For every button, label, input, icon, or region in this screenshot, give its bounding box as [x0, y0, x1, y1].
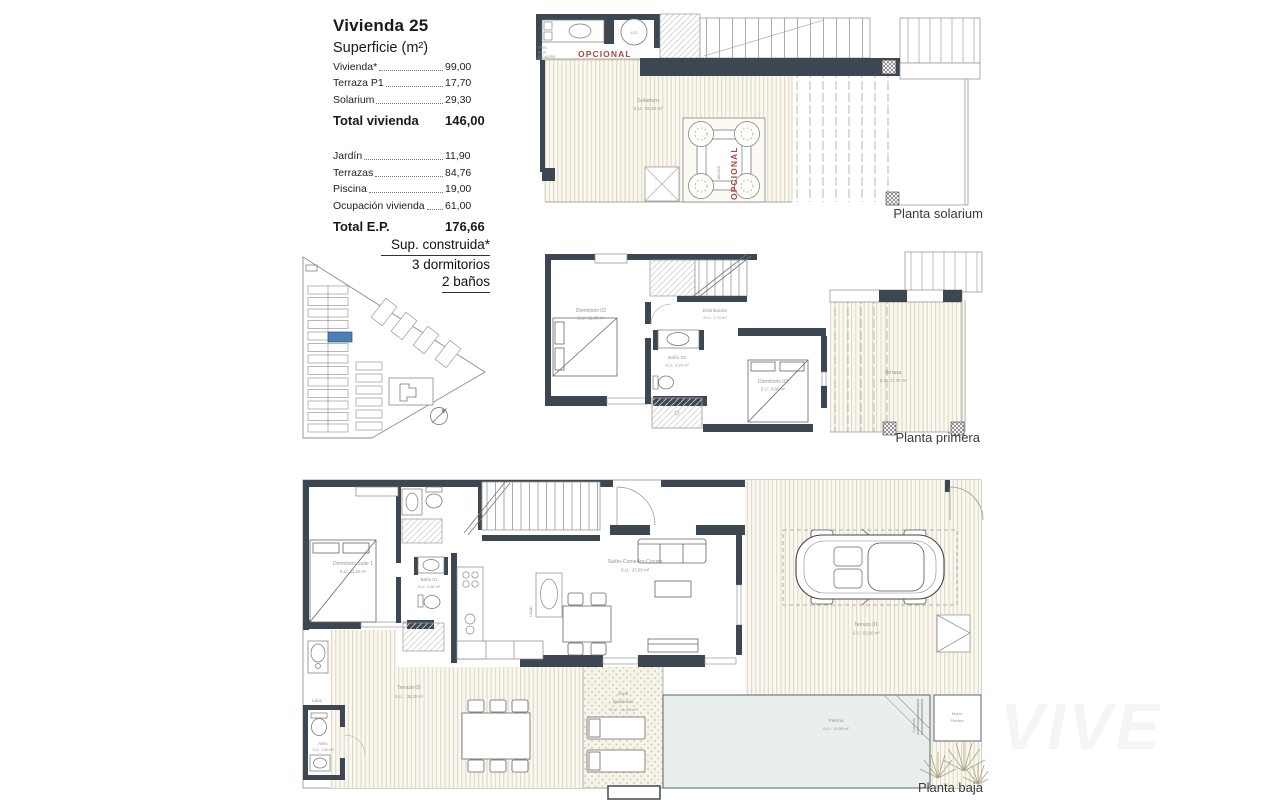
- total-label: Total E.P.: [333, 219, 445, 234]
- toilet-icon: [426, 494, 442, 508]
- skylight-icon: [645, 167, 679, 201]
- door-swing: [651, 304, 671, 324]
- closet-icon: [356, 487, 398, 496]
- shower-icon: [652, 398, 702, 428]
- dotted-leader: [379, 70, 443, 71]
- under-stairs-label: FREG.: [538, 46, 548, 50]
- highlighted-unit-25: [328, 332, 352, 342]
- dotted-leader: [369, 192, 443, 193]
- room-label: Dormitorio Suite 1: [333, 561, 373, 567]
- bathroom-sink-icon: [653, 330, 704, 350]
- row-label: Solarium: [333, 94, 374, 106]
- closet-icon: [595, 254, 627, 263]
- wall: [703, 424, 813, 432]
- hob-icon: [463, 572, 469, 578]
- plan-baja: Piscina S.U.: 19,00 m² Cascada Motor Pis…: [296, 473, 988, 800]
- sink-icon: [311, 644, 325, 662]
- room-label: Terraza 01: [854, 622, 878, 628]
- stairs: [650, 254, 751, 300]
- lava-label: Lava: [312, 698, 322, 703]
- dwelling-title: Vivienda 25: [333, 16, 491, 36]
- sink-icon: [406, 493, 418, 511]
- wall: [879, 290, 907, 302]
- dotted-leader: [375, 176, 443, 177]
- room-area: S.U.: 53,66 m²: [853, 631, 881, 636]
- room-area: S.U. : 35,30 m²: [395, 694, 424, 699]
- surface-subtitle: Superficie (m²): [333, 40, 491, 56]
- toilet-icon: [424, 596, 440, 609]
- motor-label: Motor: [952, 711, 963, 716]
- row-label: Jardín: [333, 150, 362, 162]
- bed-icon: [310, 540, 376, 622]
- room-label: Distribuidor: [703, 308, 728, 314]
- outdoor-table-icon: [462, 700, 530, 772]
- sink-icon: [466, 626, 474, 634]
- room-label: Dormitorio 03: [758, 379, 788, 385]
- wall: [640, 58, 900, 76]
- room-area: S.U. : 11,90 m²: [610, 707, 637, 712]
- room-label: Dormitorio 02: [576, 308, 606, 314]
- sink-icon: [569, 24, 591, 38]
- total-ep-row: Total E.P. 176,66: [333, 219, 491, 234]
- row-label: Piscina: [333, 183, 367, 195]
- wall: [545, 396, 607, 406]
- pillar-icon: [542, 168, 555, 181]
- surface-row: Piscina 19,00: [333, 183, 491, 195]
- room-area: S.U.: 17,70 m²: [880, 378, 908, 383]
- site-plan: [292, 250, 488, 446]
- sink-icon: [465, 614, 475, 624]
- wall: [943, 290, 962, 302]
- dotted-leader: [376, 103, 443, 104]
- lavadora-label: LAVAD.: [529, 605, 533, 617]
- room-area: S.U.: 19,00 m²: [823, 726, 849, 731]
- room-area: S.U.: 37,00 m²: [621, 568, 650, 573]
- room-area: S.U.: 1,50 m²: [312, 748, 334, 752]
- row-label: Terraza P1: [333, 77, 384, 89]
- row-value: 29,30: [445, 94, 491, 106]
- dotted-leader: [427, 209, 443, 210]
- opcional-label-vertical: OPCIONAL: [729, 146, 739, 200]
- room-label: Terraza: [885, 370, 902, 376]
- row-value: 19,00: [445, 183, 491, 195]
- total-vivienda-row: Total vivienda 146,00: [333, 113, 491, 128]
- acs-label: ACS: [630, 31, 638, 35]
- car-icon: [796, 529, 944, 605]
- watermark: VIVE: [1000, 688, 1260, 764]
- jacuzzi-icon: [683, 118, 765, 202]
- lavadero: [308, 641, 328, 673]
- slab-edge: [900, 63, 980, 79]
- sink-icon: [314, 758, 327, 768]
- wall: [645, 302, 651, 324]
- pergola: [905, 252, 982, 292]
- plan-primera-title: Planta primera: [830, 430, 980, 445]
- open-deck-dashed: [795, 76, 900, 202]
- plan-primera: Dormitorio 02 S.U.: 11,00 m² Distribuido…: [543, 246, 985, 448]
- room-area: S.U.: 11,20 m²: [340, 569, 367, 574]
- laundry-sink-icon: [541, 579, 558, 609]
- window-icon: [822, 372, 826, 386]
- floorplan-sheet: { "info": { "title": "Vivienda 25", "sub…: [0, 0, 1280, 800]
- hob-icon: [472, 581, 478, 587]
- room-area: S.U.: 3,80 m²: [418, 585, 441, 589]
- gate-icon: [608, 786, 660, 799]
- plan-solarium-title: Planta solarium: [835, 206, 983, 221]
- row-value: 99,00: [445, 61, 491, 73]
- hob-icon: [472, 572, 478, 578]
- plan-baja-title: Planta baja: [833, 780, 983, 795]
- jacuzzi-label: JACUZZI: [717, 166, 721, 180]
- room-area: S.U.: 4,20 m²: [665, 363, 689, 368]
- motor-label: Piscina: [951, 718, 965, 723]
- shower-icon: [402, 519, 442, 543]
- row-label: Ocupación vivienda: [333, 200, 425, 212]
- ramp-icon: [937, 615, 970, 652]
- tv-bench-icon: [648, 639, 698, 652]
- hob-icon: [463, 581, 469, 587]
- surface-row: Vivienda* 99,00: [333, 61, 491, 73]
- cascada-label: Cascada: [912, 717, 916, 733]
- under-stairs-label: BAJO: [538, 51, 547, 55]
- row-label: Terrazas: [333, 167, 373, 179]
- row-value: 17,70: [445, 77, 491, 89]
- pergola: [900, 18, 980, 63]
- stairs: [660, 14, 870, 58]
- under-stairs-label: ESCALERA: [538, 55, 556, 59]
- plan-solarium: ACS FREG. BAJO ESCALERA OPCIONAL Solariu…: [518, 8, 985, 230]
- compass-icon: [431, 408, 448, 425]
- site-common-building: [389, 378, 433, 405]
- shower-icon: [403, 623, 444, 651]
- row-value: 61,00: [445, 200, 491, 212]
- stairs: [464, 481, 600, 535]
- dotted-leader: [386, 86, 443, 87]
- total-value: 146,00: [445, 113, 491, 128]
- row-value: 11,90: [445, 150, 491, 162]
- room-label: Baño 02: [668, 355, 686, 361]
- row-value: 84,76: [445, 167, 491, 179]
- pool: [663, 695, 930, 788]
- total-label: Total vivienda: [333, 113, 445, 128]
- surface-row: Terrazas 84,76: [333, 167, 491, 179]
- coffee-table-icon: [655, 581, 691, 597]
- room-area: S.U.: 9,00 m²: [761, 387, 786, 392]
- room-label: Salón-Comedor-Cocina: [607, 559, 662, 565]
- opcional-label: OPCIONAL: [578, 49, 632, 59]
- room-label: Solarium: [637, 98, 659, 104]
- room-label: Baño 01: [421, 577, 438, 582]
- surface-row: Solarium 29,30: [333, 94, 491, 106]
- surface-row: Jardín 11,90: [333, 150, 491, 162]
- total-value: 176,66: [445, 219, 491, 234]
- bed-icon: [553, 318, 617, 376]
- pillar-icon: [886, 192, 899, 205]
- toilet-icon: [312, 719, 327, 736]
- wall: [645, 338, 651, 404]
- terraza-deck-dashed: [830, 300, 888, 432]
- room-label: Aseo: [318, 741, 328, 746]
- toilet-icon: [653, 376, 674, 389]
- room-label: Terraza 02: [397, 685, 421, 691]
- wall: [738, 328, 826, 336]
- wall: [821, 336, 827, 372]
- room-label: Zona: [618, 691, 629, 696]
- room-label: ajardinada: [613, 699, 634, 704]
- wall: [540, 60, 545, 172]
- room-label: Piscina: [829, 718, 844, 723]
- row-label: Vivienda*: [333, 61, 377, 73]
- wall: [545, 254, 551, 400]
- wall: [677, 296, 747, 302]
- wall: [545, 254, 757, 260]
- sink-icon: [423, 560, 439, 571]
- dotted-leader: [364, 159, 443, 160]
- wall: [821, 386, 827, 408]
- room-area: S.U.: 29,30 m²: [633, 106, 663, 111]
- room-area: S.U.: 11,00 m²: [578, 316, 605, 321]
- surface-row: Ocupación vivienda 61,00: [333, 200, 491, 212]
- room-area: S.U.: 2,70 m²: [703, 315, 727, 320]
- surface-info-panel: Vivienda 25 Superficie (m²) Vivienda* 99…: [333, 16, 491, 234]
- surface-row: Terraza P1 17,70: [333, 77, 491, 89]
- pillar-icon: [882, 60, 896, 74]
